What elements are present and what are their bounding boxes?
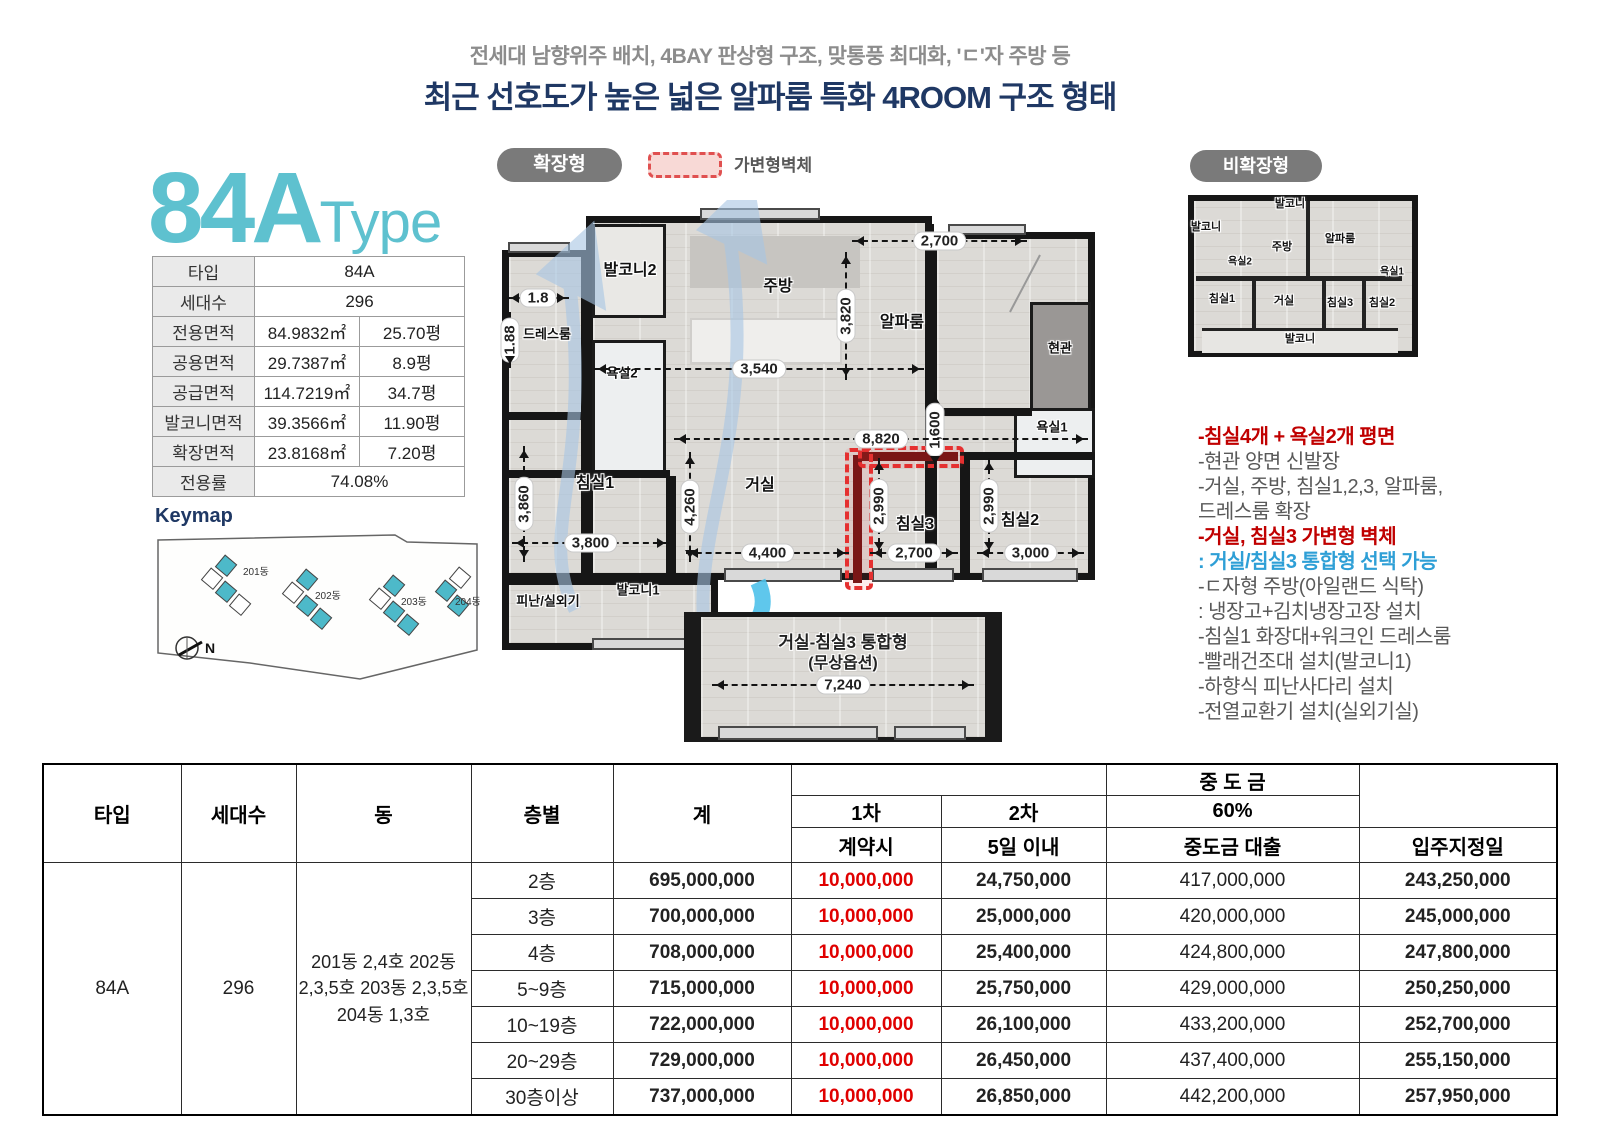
spec-label: 타입 xyxy=(153,257,255,287)
header-deposit-2-sub: 5일 이내 xyxy=(941,828,1106,863)
union-plan-subtitle: (무상옵션) xyxy=(808,649,878,673)
cell-balance: 255,150,000 xyxy=(1359,1043,1557,1079)
spec-value: 84A xyxy=(255,257,465,287)
cell-balance: 257,950,000 xyxy=(1359,1079,1557,1116)
cell-total: 729,000,000 xyxy=(613,1043,791,1079)
building-label: 204동 xyxy=(455,596,480,608)
dimension: 3,800 xyxy=(512,542,669,544)
header-total: 계 xyxy=(613,764,791,863)
cell-type: 84A xyxy=(43,863,181,1116)
table-header-row: 타입 세대수 동 층별 계 계약금 (5%) 중 도 금 잔금 (35%) xyxy=(43,764,1557,796)
dimension: 1.8 xyxy=(507,297,569,299)
dimension: 8,820 xyxy=(674,438,1088,440)
table-row: 전용률74.08% xyxy=(153,467,465,497)
cell-loan: 433,200,000 xyxy=(1106,1007,1359,1043)
header-interim-60: 60% xyxy=(1106,796,1359,828)
header-balance: 잔금 (35%) xyxy=(1359,764,1557,828)
table-row: 발코니면적39.3566㎡11.90평 xyxy=(153,407,465,437)
cell-loan: 424,800,000 xyxy=(1106,935,1359,971)
unit-type-title: 84A Type xyxy=(148,158,478,258)
flexible-wall-legend-swatch xyxy=(648,152,722,178)
spec-py: 11.90평 xyxy=(360,407,465,437)
cell-p1: 10,000,000 xyxy=(791,899,941,935)
room-label: 침실1 xyxy=(576,469,614,493)
table-row: 세대수296 xyxy=(153,287,465,317)
cell-total: 695,000,000 xyxy=(613,863,791,899)
building-label: 201동 xyxy=(243,566,269,578)
room-label: 발코니 xyxy=(1275,195,1305,211)
spec-label: 공용면적 xyxy=(153,347,255,377)
dimension: 3,820 xyxy=(845,252,847,380)
header-deposit: 계약금 (5%) xyxy=(791,764,1106,796)
cell-loan: 420,000,000 xyxy=(1106,899,1359,935)
room-label: 거실 xyxy=(745,471,774,495)
cell-p2: 25,750,000 xyxy=(941,971,1106,1007)
window xyxy=(718,726,878,740)
wall xyxy=(1322,280,1326,328)
cell-dong: 201동 2,4호 202동 2,3,5호 203동 2,3,5호 204동 1… xyxy=(296,863,471,1116)
room-label: 욕실2 xyxy=(1228,253,1252,268)
feature-item: -전열교환기 설치(실외기실) xyxy=(1198,695,1418,724)
header-interim: 중 도 금 xyxy=(1106,764,1359,796)
spec-py: 7.20평 xyxy=(360,437,465,467)
wall xyxy=(1196,276,1402,281)
cell-p1: 10,000,000 xyxy=(791,1079,941,1116)
room-label: 욕실2 xyxy=(606,363,637,382)
table-row: 공급면적114.7219㎡34.7평 xyxy=(153,377,465,407)
building-label: 202동 xyxy=(315,590,341,602)
cell-total: 700,000,000 xyxy=(613,899,791,935)
room-label: 주방 xyxy=(1272,238,1292,254)
cell-floor: 4층 xyxy=(471,935,613,971)
cell-floor: 20~29층 xyxy=(471,1043,613,1079)
cell-total: 708,000,000 xyxy=(613,935,791,971)
spec-value: 74.08% xyxy=(255,467,465,497)
table-row: 84A 296 201동 2,4호 202동 2,3,5호 203동 2,3,5… xyxy=(43,863,1557,899)
cell-p2: 26,850,000 xyxy=(941,1079,1106,1116)
north-label: N xyxy=(205,640,215,656)
room-label: 욕실1 xyxy=(1036,417,1067,436)
cell-balance: 245,000,000 xyxy=(1359,899,1557,935)
cell-p2: 25,000,000 xyxy=(941,899,1106,935)
dimension: 3,000 xyxy=(977,552,1084,554)
spec-py: 8.9평 xyxy=(360,347,465,377)
table-row: 타입84A xyxy=(153,257,465,287)
cell-p2: 24,750,000 xyxy=(941,863,1106,899)
header-deposit-1-sub: 계약시 xyxy=(791,828,941,863)
room-label: 발코니1 xyxy=(616,580,659,599)
cell-floor: 5~9층 xyxy=(471,971,613,1007)
price-table: 타입 세대수 동 층별 계 계약금 (5%) 중 도 금 잔금 (35%) 1차… xyxy=(42,763,1558,1116)
cell-p1: 10,000,000 xyxy=(791,1043,941,1079)
header-interim-loan: 중도금 대출 xyxy=(1106,828,1359,863)
cell-floor: 10~19층 xyxy=(471,1007,613,1043)
table-row: 전용면적84.9832㎡25.70평 xyxy=(153,317,465,347)
spec-m2: 29.7387㎡ xyxy=(255,347,360,377)
dimension: 2,700 xyxy=(870,552,958,554)
cell-balance: 252,700,000 xyxy=(1359,1007,1557,1043)
dimension: 1.88 xyxy=(509,312,511,368)
room-label: 알파룸 xyxy=(1325,230,1355,246)
room-label: 드레스룸 xyxy=(523,324,571,343)
spec-label: 공급면적 xyxy=(153,377,255,407)
cell-p1: 10,000,000 xyxy=(791,1007,941,1043)
dimension: 2,700 xyxy=(852,240,1027,242)
room-label: 알파룸 xyxy=(880,308,924,332)
room-label: 욕실1 xyxy=(1380,263,1404,278)
spec-py: 25.70평 xyxy=(360,317,465,347)
header-floor: 층별 xyxy=(471,764,613,863)
header-balance-date: 입주지정일 xyxy=(1359,828,1557,863)
room-label: 침실2 xyxy=(1369,294,1395,310)
page-title: 최근 선호도가 높은 넓은 알파룸 특화 4ROOM 구조 형태 xyxy=(0,72,1540,117)
flyer-page: 전세대 남향위주 배치, 4BAY 판상형 구조, 맞통풍 최대화, 'ㄷ'자 … xyxy=(0,0,1600,1131)
room-label: 발코니 xyxy=(1191,218,1221,234)
table-row: 공용면적29.7387㎡8.9평 xyxy=(153,347,465,377)
room-label: 거실 xyxy=(1274,292,1294,308)
window xyxy=(894,726,966,740)
table-row: 확장면적23.8168㎡7.20평 xyxy=(153,437,465,467)
dimension: 7,240 xyxy=(712,684,974,686)
cell-total: 722,000,000 xyxy=(613,1007,791,1043)
spec-m2: 23.8168㎡ xyxy=(255,437,360,467)
flexible-wall-legend-label: 가변형벽체 xyxy=(734,153,812,179)
dimension: 4,260 xyxy=(689,452,691,562)
dimension: 1,600 xyxy=(934,392,936,468)
spec-label: 발코니면적 xyxy=(153,407,255,437)
header-deposit-2: 2차 xyxy=(941,796,1106,828)
subtitle: 전세대 남향위주 배치, 4BAY 판상형 구조, 맞통풍 최대화, 'ㄷ'자 … xyxy=(0,40,1540,70)
spec-label: 세대수 xyxy=(153,287,255,317)
room-label: 침실3 xyxy=(896,510,934,534)
keymap-title: Keymap xyxy=(155,505,233,528)
cell-loan: 442,200,000 xyxy=(1106,1079,1359,1116)
header-type: 타입 xyxy=(43,764,181,863)
wall xyxy=(1362,280,1366,328)
non-expanded-type-badge: 비확장형 xyxy=(1190,150,1322,182)
spec-table: 타입84A 세대수296 전용면적84.9832㎡25.70평 공용면적29.7… xyxy=(152,256,465,497)
room-label: 침실2 xyxy=(1001,506,1039,530)
cell-loan: 417,000,000 xyxy=(1106,863,1359,899)
wall xyxy=(1252,280,1256,328)
spec-py: 34.7평 xyxy=(360,377,465,407)
dimension: 4,400 xyxy=(686,552,849,554)
building-label: 203동 xyxy=(401,596,427,608)
cell-loan: 437,400,000 xyxy=(1106,1043,1359,1079)
cell-balance: 250,250,000 xyxy=(1359,971,1557,1007)
spec-m2: 84.9832㎡ xyxy=(255,317,360,347)
header-dong: 동 xyxy=(296,764,471,863)
cell-total: 737,000,000 xyxy=(613,1079,791,1116)
cell-p1: 10,000,000 xyxy=(791,863,941,899)
cell-p2: 25,400,000 xyxy=(941,935,1106,971)
spec-value: 296 xyxy=(255,287,465,317)
cell-units: 296 xyxy=(181,863,296,1116)
cell-floor: 2층 xyxy=(471,863,613,899)
cell-p2: 26,100,000 xyxy=(941,1007,1106,1043)
spec-m2: 114.7219㎡ xyxy=(255,377,360,407)
spec-m2: 39.3566㎡ xyxy=(255,407,360,437)
cell-total: 715,000,000 xyxy=(613,971,791,1007)
spec-label: 전용률 xyxy=(153,467,255,497)
room-label: 침실3 xyxy=(1327,294,1353,310)
keymap-outline xyxy=(158,535,477,679)
cell-floor: 3층 xyxy=(471,899,613,935)
dimension: 2,990 xyxy=(878,458,880,554)
room-label: 발코니2 xyxy=(603,256,656,280)
cell-balance: 243,250,000 xyxy=(1359,863,1557,899)
unit-name: 84A xyxy=(148,158,319,258)
spec-label: 확장면적 xyxy=(153,437,255,467)
dimension: 2,990 xyxy=(988,458,990,554)
cell-p1: 10,000,000 xyxy=(791,935,941,971)
cell-p2: 26,450,000 xyxy=(941,1043,1106,1079)
spec-label: 전용면적 xyxy=(153,317,255,347)
keymap: 201동 202동 203동 204동 N xyxy=(155,532,480,682)
room-label: 현관 xyxy=(1048,338,1072,357)
cell-floor: 30층이상 xyxy=(471,1079,613,1116)
wall xyxy=(1306,201,1310,277)
room-label: 침실1 xyxy=(1209,290,1235,306)
cell-balance: 247,800,000 xyxy=(1359,935,1557,971)
room-label: 피난/실외기 xyxy=(516,591,579,610)
expanded-type-badge: 확장형 xyxy=(497,148,622,182)
header-deposit-1: 1차 xyxy=(791,796,941,828)
cell-p1: 10,000,000 xyxy=(791,971,941,1007)
cell-loan: 429,000,000 xyxy=(1106,971,1359,1007)
room-label: 발코니 xyxy=(1285,330,1315,346)
dimension: 3,540 xyxy=(594,368,924,370)
room-label: 주방 xyxy=(763,272,792,296)
header-units: 세대수 xyxy=(181,764,296,863)
unit-suffix: Type xyxy=(319,189,441,256)
